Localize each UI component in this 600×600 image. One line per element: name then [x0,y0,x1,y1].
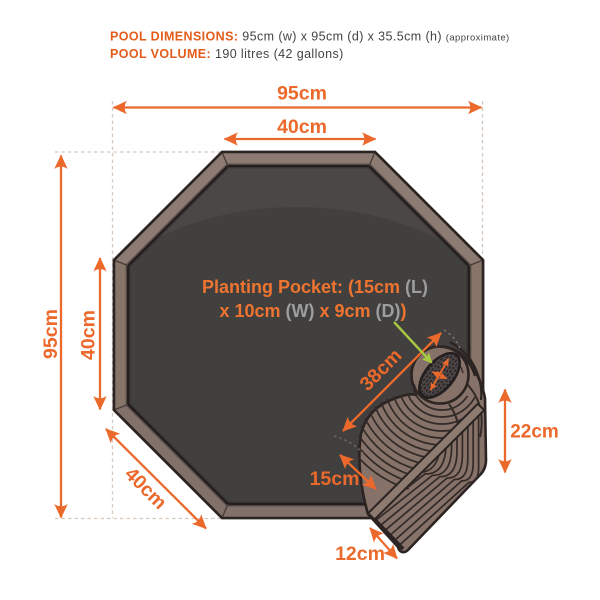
svg-text:15cm: 15cm [310,468,360,490]
svg-text:40cm: 40cm [78,310,100,360]
svg-text:22cm: 22cm [510,422,559,443]
svg-text:40cm: 40cm [277,116,327,138]
svg-text:POOL DIMENSIONS: 95cm (w) x 95: POOL DIMENSIONS: 95cm (w) x 95cm (d) x 3… [110,30,510,44]
svg-text:95cm: 95cm [40,309,62,359]
svg-text:x 10cm (W) x 9cm (D)): x 10cm (W) x 9cm (D)) [219,301,406,321]
svg-text:Planting Pocket: (15cm (L): Planting Pocket: (15cm (L) [202,277,428,297]
svg-text:POOL VOLUME: 190 litres (42 ga: POOL VOLUME: 190 litres (42 gallons) [110,47,344,61]
svg-text:12cm: 12cm [335,543,385,565]
svg-text:95cm: 95cm [277,83,327,105]
